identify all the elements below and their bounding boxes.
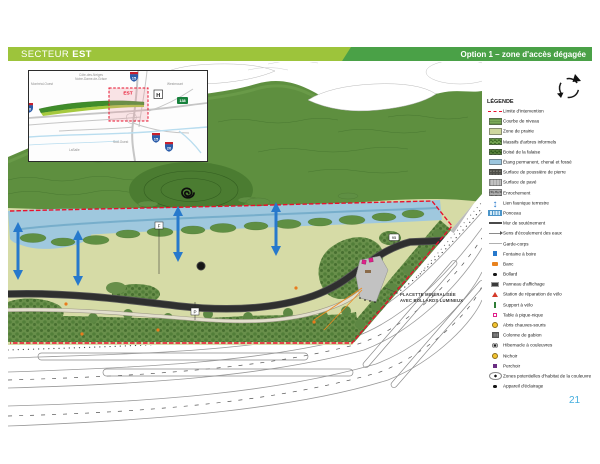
legend-item: Limite d'intervention [487,106,599,116]
legend-item: Fontaine à boire [487,249,599,259]
marker-f-label: F [158,224,161,229]
legend-item-label: Étang permanent, chenal et fossé [503,160,572,165]
fontaine-icon [487,251,503,256]
picnic-table-icon [369,258,374,263]
nichoir-icon [487,353,503,359]
bench-icon [365,270,371,273]
legend-item: Ponceau [487,208,599,218]
legend-item: Bollard [487,269,599,279]
legend-item: Panneau d'affichage [487,279,599,289]
legend-item-label: Surface de pavé [503,180,536,185]
svg-text:H: H [156,93,160,99]
label-westmount: Westmount [167,82,183,86]
legend-item: Colonne de gabion [487,330,599,340]
label-sud-ouest: Sud-Ouest [113,140,128,144]
svg-text:15: 15 [132,76,137,81]
pave-icon [487,179,503,186]
legend-item-label: Fontaine à boire [503,251,536,256]
legend-item-label: Perchoir [503,363,520,368]
legend-item-label: Panneau d'affichage [503,282,545,287]
page: Option 1 – zone d'accès dégagée SECTEUR … [0,0,600,464]
svg-text:15: 15 [154,137,159,142]
legend-item-label: Boisé de la falaise [503,149,540,154]
ponceau-icon [487,210,503,217]
legend-item: Mur de soutènement [487,218,599,228]
autoroute-15-shield-icon: 15 [152,133,160,143]
pouss-icon [487,169,503,176]
header-sector-bar: SECTEUR EST [8,47,351,61]
bollard-icon [487,273,503,276]
legend-item-label: Mur de soutènement [503,221,545,226]
legend-item-label: Sens d'écoulement des eaux [503,231,562,236]
legend-item: Banc [487,259,599,269]
inset-map: EST H 15 15 20 20 138 C [28,70,208,162]
zones-icon [487,372,503,381]
sens-icon [487,233,503,234]
legend-item: Lien faunique terrestre [487,198,599,208]
legend-item: Table à pique-nique [487,310,599,320]
legend-item-label: Nichoir [503,353,517,358]
label-lasalle: LaSalle [69,148,80,152]
legend-item-label: Courbe de niveau [503,119,539,124]
page-number: 21 [569,395,580,406]
label-montreal-ouest: Montréal-Ouest [31,82,53,86]
header-bar: Option 1 – zone d'accès dégagée SECTEUR … [8,47,592,61]
legend-item-label: Zone de prairie [503,129,534,134]
autoroute-20-shield-icon: 20 [165,142,173,152]
legend-item: Zone de prairie [487,126,599,136]
courbe-icon [487,118,503,125]
station-icon [487,292,503,297]
legend-item: Surface de pavé [487,177,599,187]
legend-item: Abris chauves-souris [487,320,599,330]
sector-label: SECTEUR [21,49,69,60]
perchoir-icon [487,364,503,368]
legend-item-label: Zones potentielles d'habitat de la coule… [503,373,591,378]
pond-dot [197,262,205,270]
legend-item: Zones potentielles d'habitat de la coule… [487,371,599,381]
massifs-icon [487,138,503,145]
header-option-bar: Option 1 – zone d'accès dégagée [308,47,592,61]
garde-icon [487,243,503,244]
legend-item: Étang permanent, chenal et fossé [487,157,599,167]
legend-item-label: Surface de poussière de pierre [503,170,566,175]
sign-95-label: 95 [392,235,397,240]
banc-icon [487,262,503,265]
legend-item: Sens d'écoulement des eaux [487,228,599,238]
placette-label-line1: PLACETTE MINÉRALISÉE [400,292,456,297]
legend-item-label: Station de réparation de vélo [503,292,562,297]
legend-item: Massifs d'arbres informels [487,137,599,147]
legend-item: Perchoir [487,361,599,371]
autoroute-shield-icon: 20 [29,103,33,113]
legend: LÉGENDE Limite d'interventionCourbe de n… [487,99,599,391]
option-title: Option 1 – zone d'accès dégagée [461,50,587,59]
hospital-icon: H [154,90,163,99]
legend-item-label: Bollard [503,272,517,277]
legend-item: Garde-corps [487,238,599,248]
legend-item-label: Table à pique-nique [503,312,543,317]
legend-item-label: Abris chauves-souris [503,323,546,328]
legend-item: Hibernacle à couleuvres [487,340,599,350]
panneau-icon [487,282,503,287]
legend-item-label: Enrochement [503,190,530,195]
legend-item: Support à vélo [487,300,599,310]
legend-item: Nichoir [487,351,599,361]
legend-item: Enrochement [487,188,599,198]
table-icon [487,313,503,318]
legend-item-label: Garde-corps [503,241,529,246]
appareil-icon [487,385,503,388]
prairie-icon [487,128,503,135]
inset-map-svg: EST H 15 15 20 20 138 C [29,71,207,161]
legend-item-label: Lien faunique terrestre [503,200,549,205]
legend-item: Courbe de niveau [487,116,599,126]
legend-item-label: Support à vélo [503,302,533,307]
legend-item-label: Limite d'intervention [503,109,544,114]
legend-item-label: Appareil d'éclairage [503,384,543,389]
mur-icon [487,222,503,224]
abris-icon [487,322,503,328]
placette-label-line2: AVEC BOLLARDS LUMINEUX [400,298,463,303]
inset-zone-label: EST [123,91,132,97]
legend-item-label: Massifs d'arbres informels [503,139,556,144]
svg-text:20: 20 [167,146,172,151]
svg-text:138: 138 [179,99,185,103]
legend-item: Appareil d'éclairage [487,381,599,391]
picnic-table-icon [362,260,367,265]
legend-item: Surface de poussière de pierre [487,167,599,177]
legend-title: LÉGENDE [487,99,549,103]
label-district-2: Notre-Dame-de-Grâce [75,77,107,81]
limite-icon [487,111,503,112]
etang-icon [487,159,503,166]
gabion-icon [487,332,503,338]
legend-item-label: Colonne de gabion [503,333,542,338]
hibern-icon [487,343,503,348]
legend-item: Boisé de la falaise [487,147,599,157]
support-icon [487,302,503,308]
sector-name: EST [72,49,92,60]
legend-item: Station de réparation de vélo [487,289,599,299]
legend-item-label: Banc [503,261,513,266]
marker-p-label: P [193,310,196,315]
legend-items: Limite d'interventionCourbe de niveauZon… [487,106,599,391]
legend-item-label: Hibernacle à couleuvres [503,343,552,348]
route-138-shield-icon: 138 [177,97,188,104]
legend-item-label: Ponceau [503,210,521,215]
boise-icon [487,149,503,156]
